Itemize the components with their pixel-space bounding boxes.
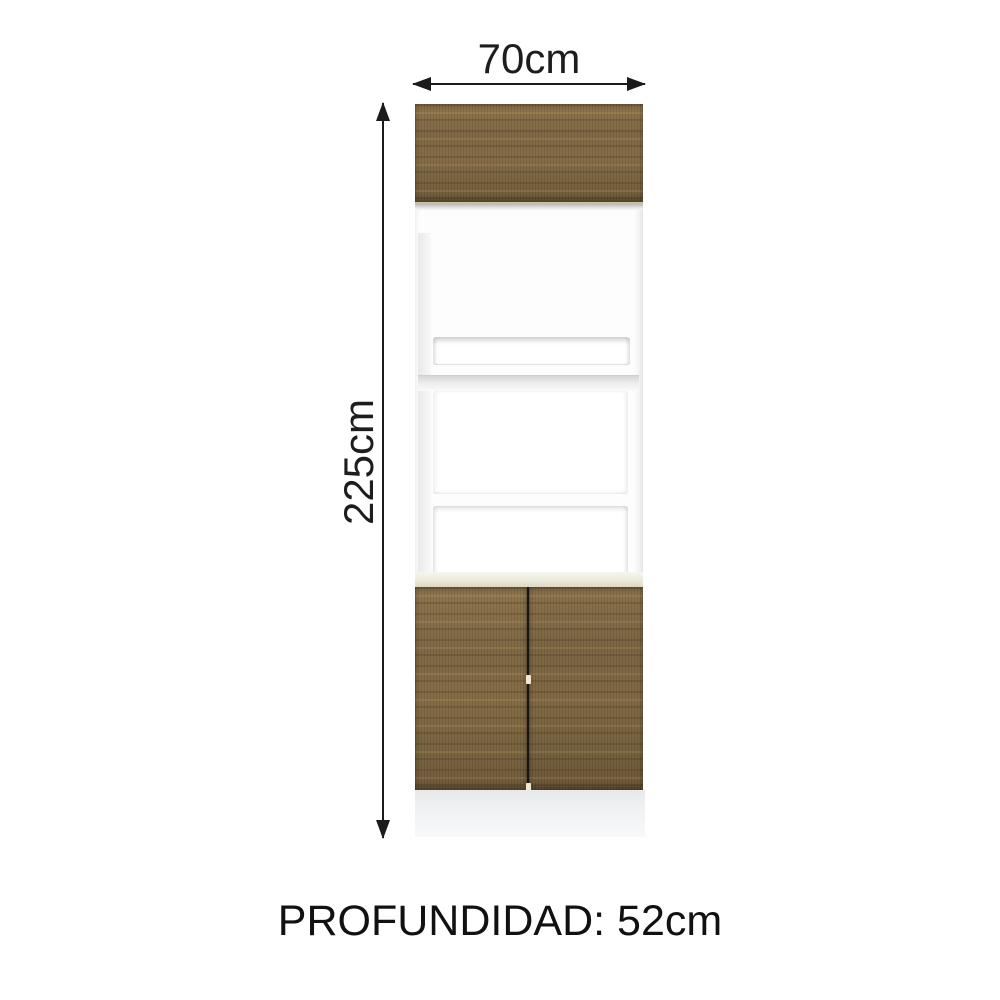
height-dimension-arrow (382, 103, 384, 838)
width-dimension-arrow (413, 83, 645, 85)
cabinet-top-door (415, 104, 643, 204)
arrowhead-up-icon (376, 102, 390, 121)
arrowhead-down-icon (376, 820, 390, 839)
door-gap-hinge-mark (526, 675, 531, 684)
width-dimension-label: 70cm (413, 36, 645, 82)
cabinet-bottom-doors (415, 587, 643, 790)
arrowhead-right-icon (627, 77, 646, 91)
niche-middle-opening (433, 391, 628, 494)
shelf-underside-shadow (418, 375, 639, 391)
height-dimension-label: 225cm (337, 362, 381, 562)
bottom-door-left (415, 587, 527, 790)
arrowhead-left-icon (412, 77, 431, 91)
product-dimension-diagram: 70cm 225cm PROFUNDIDAD: 52cm (0, 0, 1000, 1000)
cabinet-plinth (415, 790, 645, 837)
cabinet-illustration (415, 104, 643, 837)
cabinet-open-frame (415, 210, 643, 572)
cabinet-trim-band (415, 572, 643, 587)
bottom-door-right (529, 587, 643, 790)
depth-dimension-label: PROFUNDIDAD: 52cm (0, 897, 1000, 945)
niche-slot-opening (433, 337, 630, 365)
